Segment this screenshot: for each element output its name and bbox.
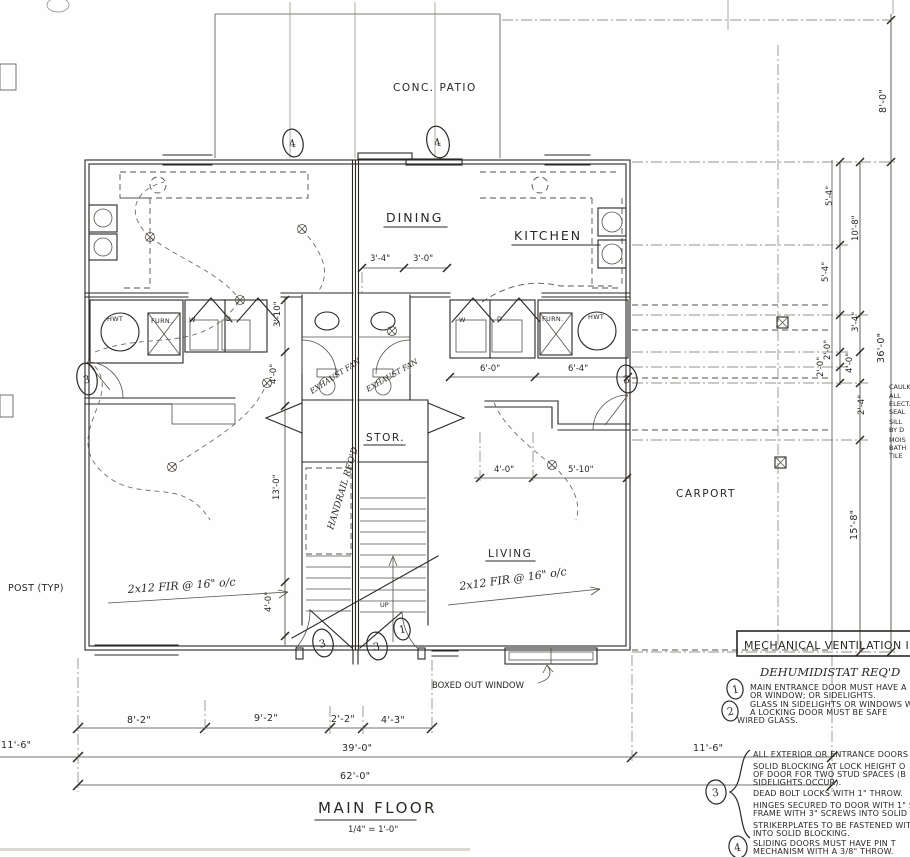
- dim-label: 3'-4": [370, 254, 390, 264]
- edge-note-line: MOIS: [889, 436, 906, 444]
- note-line: ALL EXTERIOR OR ENTRANCE DOORS: [753, 750, 908, 759]
- edge-note-line: CAULK: [889, 383, 910, 391]
- title-text: MAIN FLOOR: [318, 799, 437, 817]
- hand-annotations: 2x12 FIR @ 16" o/c 2x12 FIR @ 16" o/c EX…: [108, 356, 600, 691]
- dining-label: DINING: [386, 210, 443, 225]
- joist-note: 2x12 FIR @ 16" o/c: [126, 575, 236, 596]
- keynote-number: 4: [288, 137, 297, 150]
- living-label: LIVING: [488, 548, 532, 560]
- edge-note-line: ELECT.: [889, 400, 910, 408]
- ceiling-light-symbol: [146, 225, 557, 472]
- edge-note-line: BY D: [889, 426, 904, 434]
- dim-label: 3'-4": [851, 312, 861, 332]
- dim-label: 4'-0": [845, 353, 855, 373]
- keynote-number: 3: [82, 374, 91, 387]
- note-line: FRAME WITH 3" SCREWS INTO SOLID: [753, 809, 907, 818]
- dryer-label: D: [497, 315, 502, 323]
- edge-note-line: TILE: [888, 452, 903, 460]
- scan-artifact: [0, 848, 470, 851]
- keynote-number: 3: [711, 787, 719, 800]
- mech-vent-title: MECHANICAL VENTILATION IS: [744, 639, 910, 652]
- note-line: WIRED GLASS.: [737, 716, 798, 725]
- keynote-4: 4: [727, 835, 749, 857]
- keynote-4: 4: [280, 127, 305, 159]
- post-label: POST (TYP): [8, 583, 64, 594]
- hwt-label: HWT: [107, 315, 123, 323]
- dim-label: 9'-2": [254, 713, 278, 724]
- dim-label: 6'-0": [480, 364, 500, 374]
- carport-label: CARPORT: [676, 488, 736, 500]
- edge-note-line: BATH: [889, 444, 906, 452]
- note-line: MECHANISM WITH A 3/8" THROW.: [753, 847, 894, 856]
- post-symbol: [775, 457, 786, 468]
- dim-label: 13'-0": [272, 474, 282, 500]
- stor-label: STOR.: [366, 432, 405, 444]
- keynote-number: 3: [318, 638, 327, 651]
- dim-label: 2'-2": [331, 714, 355, 725]
- dim-label: 3'-0": [413, 254, 433, 264]
- edge-note-line: SEAL: [889, 408, 906, 416]
- party-wall: [353, 160, 359, 664]
- edge-note-line: ALL: [889, 392, 901, 400]
- dim-label: 11'-6": [1, 740, 31, 751]
- dim-label: 5'-4": [821, 262, 831, 282]
- patio-label: CONC. PATIO: [393, 82, 477, 94]
- furn-label: FURN.: [151, 317, 172, 325]
- dim-label: 5'-10": [568, 465, 594, 475]
- dim-label: 11'-6": [693, 743, 723, 754]
- dim-label: 6'-4": [568, 364, 588, 374]
- boxed-window-note: BOXED OUT WINDOW: [432, 681, 525, 691]
- dim-label: 4'-0": [269, 364, 279, 384]
- keynote-1: 1: [725, 678, 744, 700]
- title-scale: 1/4" = 1'-0": [348, 825, 398, 835]
- dim-label: 62'-0": [340, 771, 370, 782]
- floor-plan-sheet: 4 4 3 3 3 3 1 CONC. PATIO DINING: [0, 0, 910, 857]
- dim-label: 4'-0": [494, 465, 514, 475]
- dim-label: 4'-3": [381, 715, 405, 726]
- keynote-number: 1: [398, 623, 407, 636]
- edge-note-line: SILL: [889, 418, 903, 426]
- joist-note: 2x12 FIR @ 16" o/c: [458, 565, 568, 593]
- note-line: SIDELIGHTS OCCUR).: [753, 778, 841, 787]
- notes-block: MECHANICAL VENTILATION IS DEHUMIDISTAT R…: [704, 631, 910, 857]
- keynote-3: 3: [310, 627, 335, 659]
- note-line: DEAD BOLT LOCKS WITH 1" THROW.: [753, 789, 903, 798]
- exhaust-fan-note: EXHAUST FAN: [307, 356, 362, 396]
- keynote-4: 4: [423, 124, 452, 160]
- sheet-title: MAIN FLOOR 1/4" = 1'-0": [315, 799, 437, 835]
- dim-label: 36'-0": [876, 333, 887, 363]
- carport-structure: [632, 45, 832, 650]
- keynote-3: 3: [74, 362, 99, 397]
- patio-outline: [0, 0, 893, 417]
- dim-label: 39'-0": [342, 743, 372, 754]
- washer-label: W: [189, 316, 196, 324]
- dehumidistat-note: DEHUMIDISTAT REQ'D: [759, 665, 900, 679]
- furn-label: FURN.: [542, 315, 563, 323]
- hwt-label: HWT: [588, 313, 604, 321]
- up-label: UP: [380, 601, 389, 609]
- keynote-3: 3: [704, 779, 727, 806]
- room-labels: CONC. PATIO DINING KITCHEN STOR. LIVING …: [8, 82, 736, 609]
- dim-label: 5'-4": [825, 186, 835, 206]
- keynote-number: 2: [726, 705, 735, 718]
- dim-label: 10'-8": [851, 215, 861, 241]
- dim-label: 8'-0": [878, 89, 889, 113]
- dim-label: 2'-4": [857, 395, 867, 415]
- dryer-label: D: [226, 315, 231, 323]
- dim-label: 4'-0": [264, 592, 274, 612]
- floor-plan-drawing: 4 4 3 3 3 3 1 CONC. PATIO DINING: [0, 0, 910, 857]
- keynote-number: 4: [733, 842, 742, 855]
- keynote-number: 1: [731, 683, 740, 696]
- keynote-3: 3: [615, 363, 640, 394]
- note-line: INTO SOLID BLOCKING.: [753, 829, 850, 838]
- washer-label: W: [459, 316, 466, 324]
- kitchen-label: KITCHEN: [514, 228, 582, 243]
- right-dim-labels: 8'-0" 5'-4" 10'-8" 5'-4" 3'-4" 2'-0" 2'-…: [816, 89, 889, 540]
- dim-label: 8'-2": [127, 715, 151, 726]
- dim-label: 15'-8": [849, 510, 860, 540]
- exhaust-fan-note: EXHAUST FAN: [364, 357, 420, 395]
- bottom-dim-labels: 8'-2" 9'-2" 2'-2" 4'-3" 39'-0" 62'-0" 11…: [1, 713, 723, 782]
- keynote-number: 4: [433, 136, 443, 149]
- doors: [87, 298, 628, 659]
- keynote-number: 3: [372, 641, 381, 654]
- note-line: OR WINDOW; OR SIDELIGHTS.: [750, 691, 876, 700]
- post-symbol: [777, 317, 788, 328]
- edge-notes: CAULK ALL ELECT. SEAL SILL BY D MOIS BAT…: [888, 383, 910, 460]
- dim-label: 3'-10": [273, 301, 283, 327]
- stairs: [292, 468, 438, 642]
- dim-label: 2'-0": [816, 357, 826, 377]
